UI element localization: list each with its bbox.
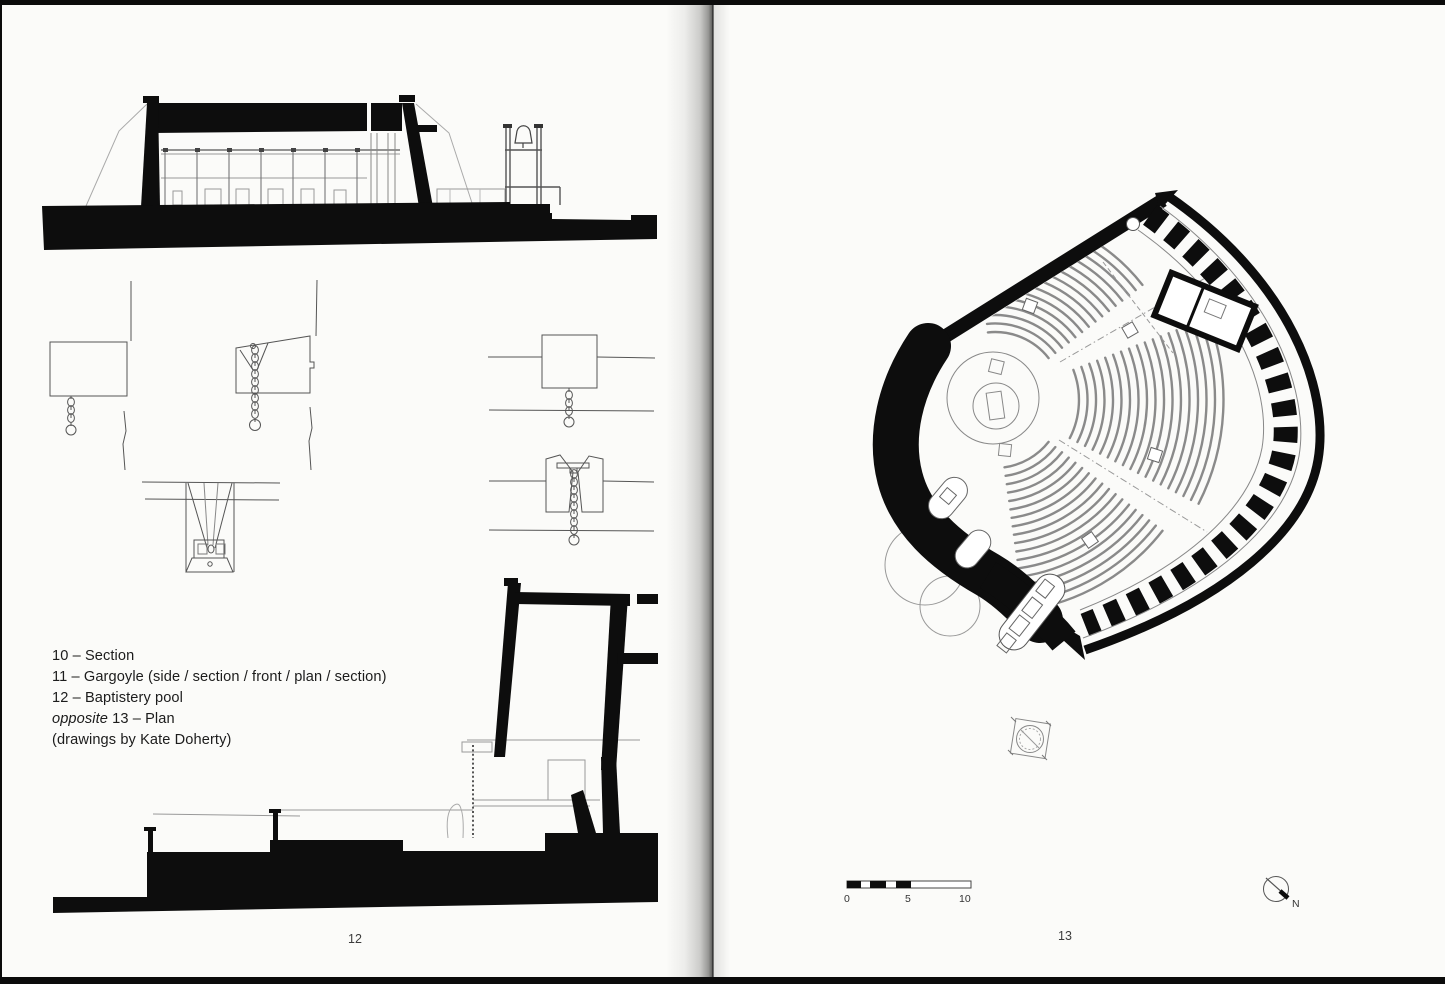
north-label: N [1292,898,1300,910]
plan-detail-marker [1008,717,1051,760]
caption-line-4: opposite 13 – Plan [52,709,432,730]
book-spread: 0 5 10 N 10 – Section 11 – Gargoyle (sid… [0,0,1445,984]
scale-tick-0: 0 [844,893,850,905]
page-number-right: 13 [1058,929,1072,943]
gargoyle-details [50,280,655,572]
caption-block: 10 – Section 11 – Gargoyle (side / secti… [52,646,432,751]
floor-plan [885,190,1320,760]
caption-opposite: opposite [52,711,108,727]
north-arrow-icon: N [1264,877,1300,911]
caption-line-3: 12 – Baptistery pool [52,688,432,709]
scale-tick-5: 5 [905,893,911,905]
scan-edge-left [0,0,2,984]
gargoyle-front-view [142,482,280,572]
scale-bar: 0 5 10 [844,881,971,905]
caption-line-5: (drawings by Kate Doherty) [52,730,432,751]
gargoyle-section2-view [489,455,654,545]
altar-platform [947,352,1039,457]
gargoyle-section-view [236,280,317,470]
bell-tower [501,124,560,214]
book-gutter-shadow [666,0,713,984]
caption-line-2: 11 – Gargoyle (side / section / front / … [52,667,432,688]
scan-edge-top [0,0,1445,5]
scale-tick-10: 10 [959,893,971,905]
section-drawing [42,95,657,250]
entrance-door [1127,218,1140,231]
caption-line-1: 10 – Section [52,646,432,667]
gargoyle-side-view [50,281,131,470]
gutter-fade [714,0,730,984]
gargoyle-plan-view [488,335,655,427]
caption-plan-ref: 13 – Plan [108,711,175,727]
page-number-left: 12 [348,932,362,946]
pews-group [976,213,1224,610]
scan-edge-bottom [0,977,1445,984]
